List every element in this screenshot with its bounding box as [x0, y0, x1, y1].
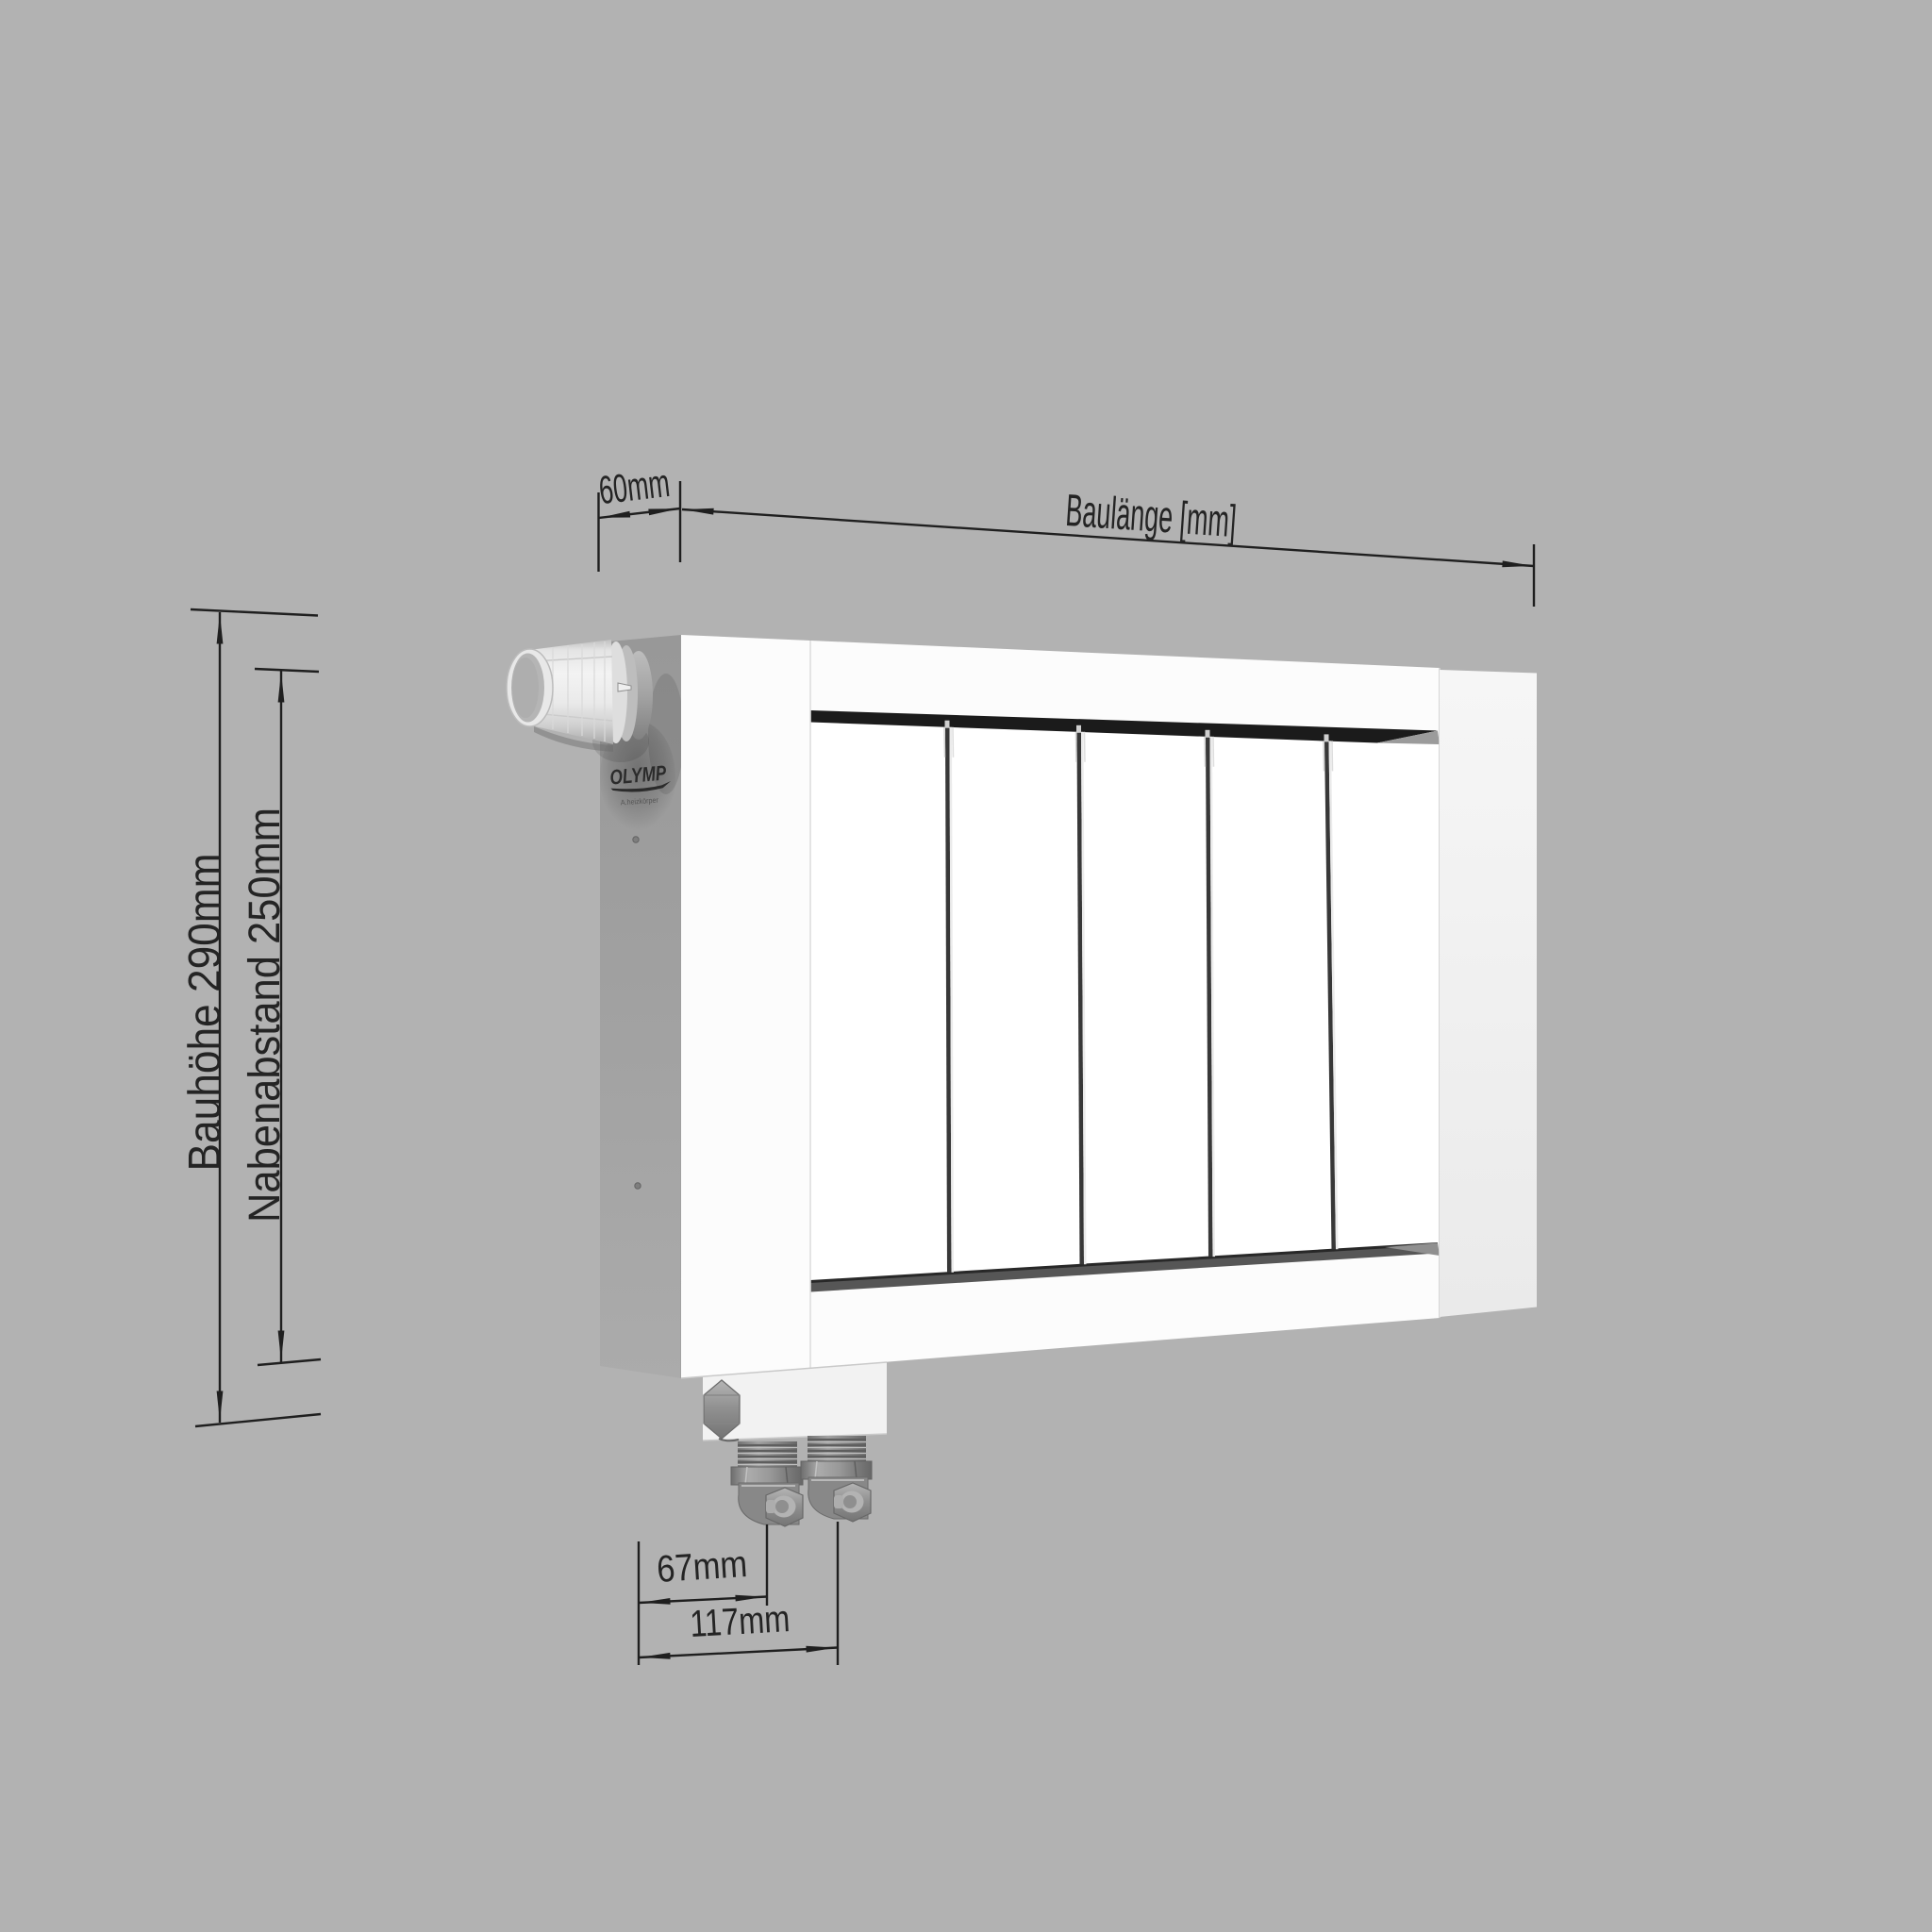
svg-text:Nabenabstand 250mm: Nabenabstand 250mm [239, 808, 289, 1223]
svg-text:60mm: 60mm [596, 460, 672, 512]
svg-text:117mm: 117mm [689, 1598, 791, 1645]
svg-text:Bauhöhe 290mm: Bauhöhe 290mm [180, 854, 230, 1172]
svg-text:OLYMP: OLYMP [608, 760, 667, 789]
svg-text:67mm: 67mm [656, 1543, 749, 1591]
